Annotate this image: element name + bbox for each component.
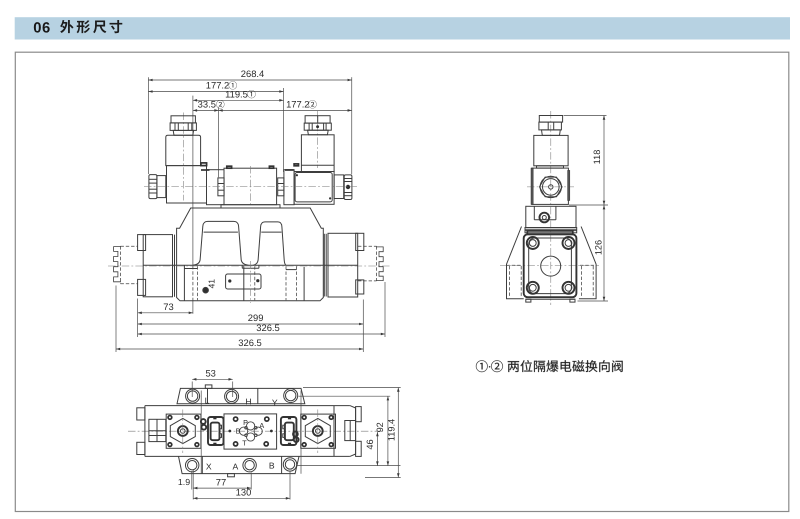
svg-text:326.5: 326.5	[256, 322, 279, 333]
svg-text:130: 130	[236, 487, 252, 498]
svg-text:B: B	[236, 427, 241, 436]
svg-text:A: A	[259, 421, 264, 430]
svg-text:177.2: 177.2	[286, 99, 309, 110]
svg-text:118: 118	[592, 150, 602, 165]
svg-text:119.5: 119.5	[225, 88, 248, 99]
svg-text:06: 06	[33, 21, 51, 37]
svg-text:33.5: 33.5	[198, 99, 216, 110]
svg-text:1.9: 1.9	[178, 477, 190, 487]
svg-text:77: 77	[216, 476, 226, 487]
svg-text:B: B	[269, 460, 275, 470]
svg-text:X: X	[206, 461, 212, 471]
svg-text:L: L	[205, 396, 210, 406]
svg-text:268.4: 268.4	[241, 68, 264, 79]
svg-text:53: 53	[205, 368, 215, 379]
svg-text:119.4: 119.4	[387, 419, 397, 441]
svg-text:46: 46	[365, 439, 375, 449]
svg-text:T: T	[242, 438, 247, 447]
svg-text:92: 92	[375, 422, 385, 432]
svg-text:126: 126	[593, 240, 603, 255]
svg-text:A: A	[233, 461, 239, 471]
svg-text:326.5: 326.5	[238, 337, 261, 348]
svg-text:P: P	[243, 418, 248, 427]
svg-text:H: H	[245, 397, 251, 407]
svg-text:73: 73	[163, 301, 173, 312]
svg-text:41: 41	[207, 279, 217, 289]
